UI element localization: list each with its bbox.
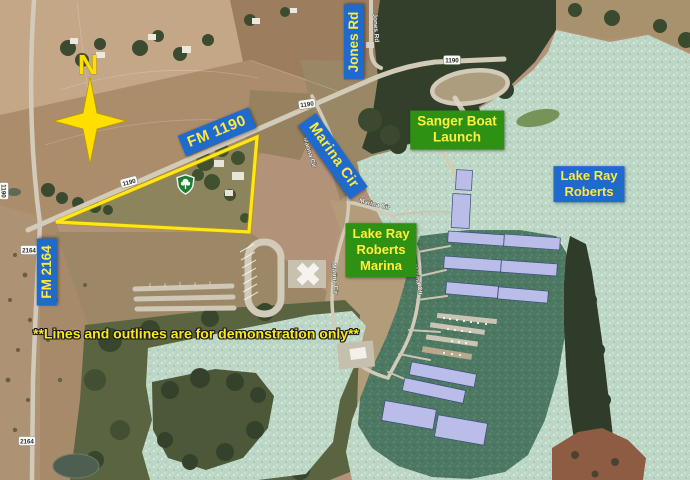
aerial-map: Jones Rd Marina Cir Marina Cir Marina Ci… <box>0 0 690 480</box>
road-label-jones-rd: Jones Rd <box>344 5 364 80</box>
route-shield-2164: 2164 <box>22 247 36 254</box>
north-label: N <box>78 49 98 80</box>
place-label-line: Roberts <box>560 184 617 200</box>
place-label-line: Lake Ray <box>352 226 409 242</box>
road-label-fm2164: FM 2164 <box>37 238 57 305</box>
route-shield-1190: 1190 <box>0 184 7 198</box>
route-shield-2164: 2164 <box>20 438 34 445</box>
place-label-line: Lake Ray <box>560 168 617 184</box>
place-label-lake-ray-roberts-marina: Lake Ray Roberts Marina <box>345 223 416 277</box>
place-label-line: Marina <box>352 258 409 274</box>
place-label-line: Roberts <box>352 242 409 258</box>
route-shield-1190: 1190 <box>445 57 459 64</box>
pond <box>53 454 99 478</box>
disclaimer-text: **Lines and outlines are for demonstrati… <box>33 325 359 342</box>
place-label-line: Launch <box>417 130 497 146</box>
place-label-sanger-boat-launch: Sanger Boat Launch <box>410 111 504 150</box>
place-label-line: Sanger Boat <box>417 114 497 130</box>
small-pond <box>7 188 21 196</box>
place-label-lake-ray-roberts: Lake Ray Roberts <box>553 166 624 202</box>
